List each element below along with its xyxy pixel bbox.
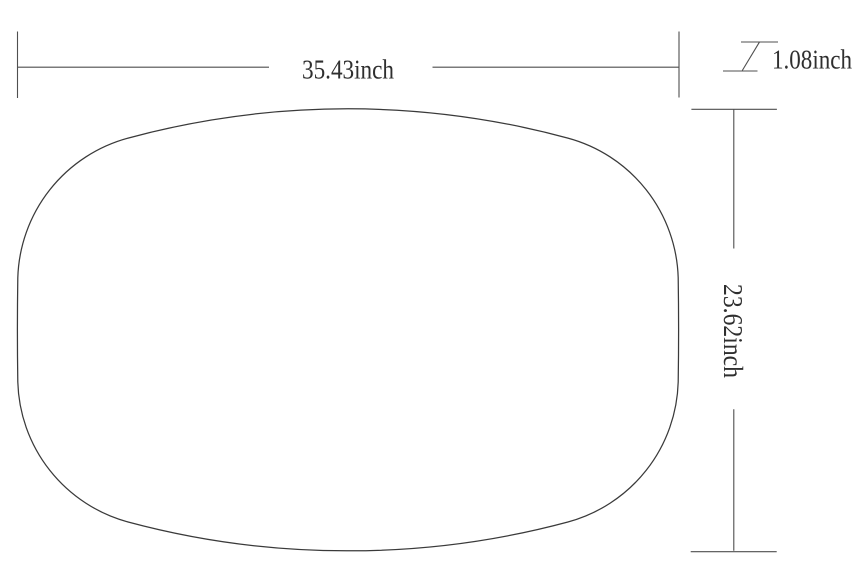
svg-text:35.43inch: 35.43inch: [302, 54, 394, 85]
svg-text:1.08inch: 1.08inch: [772, 44, 852, 75]
svg-text:23.62inch: 23.62inch: [718, 284, 749, 378]
